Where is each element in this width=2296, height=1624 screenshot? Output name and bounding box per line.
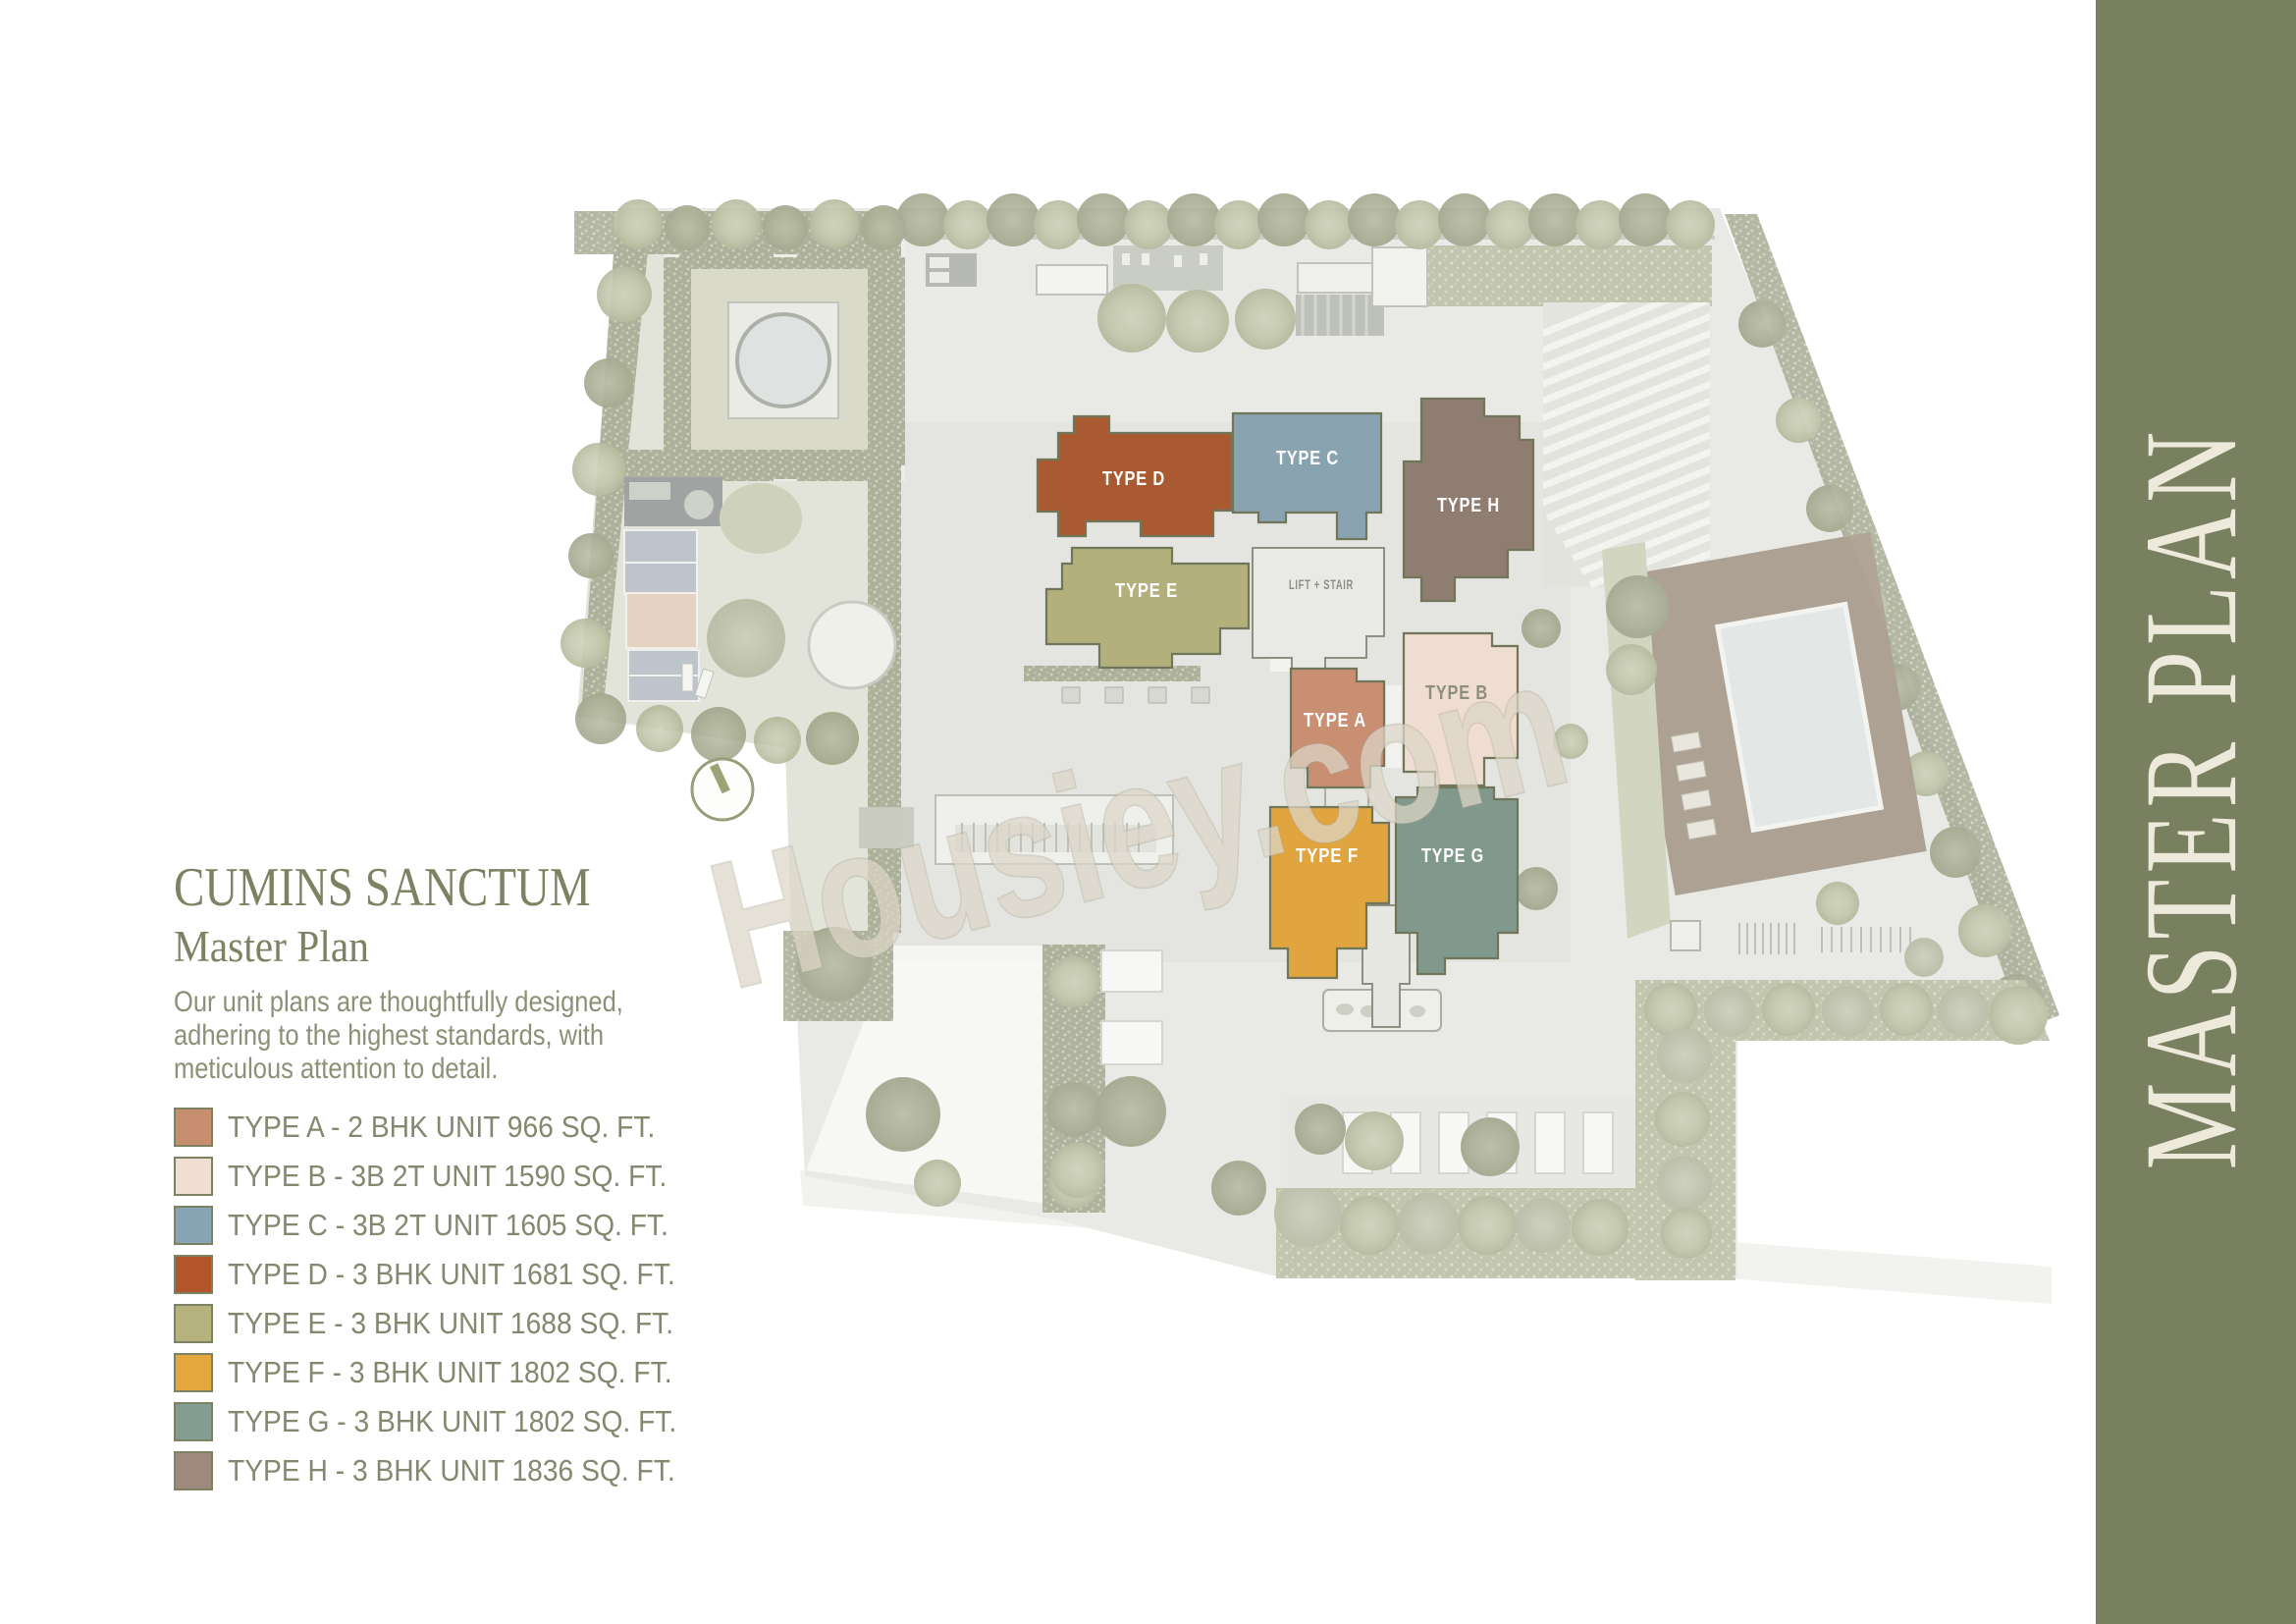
- svg-text:TYPE E: TYPE E: [1115, 580, 1178, 602]
- svg-text:LIFT + STAIR: LIFT + STAIR: [1289, 576, 1354, 592]
- svg-text:TYPE D: TYPE D: [1102, 468, 1165, 490]
- svg-text:TYPE H: TYPE H: [1437, 495, 1500, 516]
- svg-text:TYPE C: TYPE C: [1276, 448, 1339, 469]
